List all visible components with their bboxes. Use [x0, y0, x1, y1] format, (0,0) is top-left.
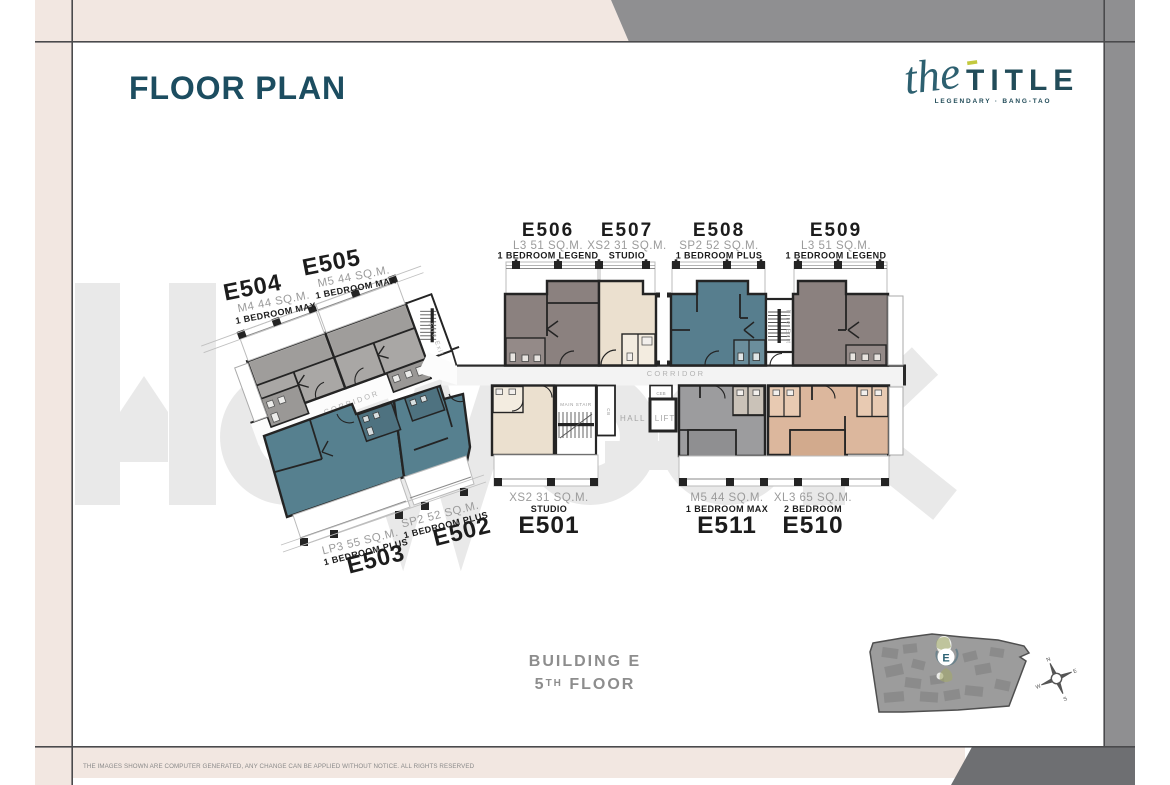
svg-text:1 BEDROOM PLUS: 1 BEDROOM PLUS [676, 251, 763, 261]
svg-text:S: S [1063, 696, 1069, 703]
svg-text:TITLE: TITLE [966, 64, 1079, 97]
svg-text:N: N [1046, 657, 1052, 664]
svg-text:E511: E511 [697, 512, 757, 539]
svg-text:STUDIO: STUDIO [609, 251, 645, 261]
svg-text:XS2 31 SQ.M.: XS2 31 SQ.M. [509, 492, 589, 504]
svg-text:E506: E506 [522, 220, 574, 241]
svg-text:M5 44 SQ.M.: M5 44 SQ.M. [690, 492, 763, 504]
svg-text:MAIN STAIR: MAIN STAIR [560, 402, 592, 407]
svg-text:FLOOR PLAN: FLOOR PLAN [129, 70, 346, 106]
svg-text:Fire Exit: Fire Exit [785, 310, 792, 345]
svg-text:BUILDING E: BUILDING E [529, 653, 641, 670]
svg-text:5TH FLOOR: 5TH FLOOR [535, 676, 636, 693]
svg-text:CB: CB [606, 408, 611, 415]
svg-text:E509: E509 [810, 220, 862, 241]
svg-text:E507: E507 [601, 220, 653, 241]
svg-text:E: E [942, 653, 949, 665]
svg-text:CORRIDOR: CORRIDOR [647, 369, 705, 378]
svg-text:the: the [901, 46, 963, 103]
svg-text:THE IMAGES SHOWN ARE COMPUTER: THE IMAGES SHOWN ARE COMPUTER GENERATED,… [83, 763, 475, 770]
svg-text:LIFT: LIFT [655, 414, 675, 423]
svg-text:XL3 65 SQ.M.: XL3 65 SQ.M. [774, 492, 852, 504]
svg-text:1 BEDROOM LEGEND: 1 BEDROOM LEGEND [786, 251, 887, 261]
svg-text:E510: E510 [782, 512, 843, 539]
svg-text:CEB: CEB [656, 391, 665, 396]
svg-text:1 BEDROOM LEGEND: 1 BEDROOM LEGEND [498, 251, 599, 261]
svg-text:LEGENDARY · BANG-TAO: LEGENDARY · BANG-TAO [935, 98, 1052, 105]
svg-text:E508: E508 [693, 220, 745, 241]
svg-text:E: E [1072, 668, 1078, 675]
svg-text:HALL: HALL [620, 414, 646, 423]
svg-text:E501: E501 [518, 512, 579, 539]
